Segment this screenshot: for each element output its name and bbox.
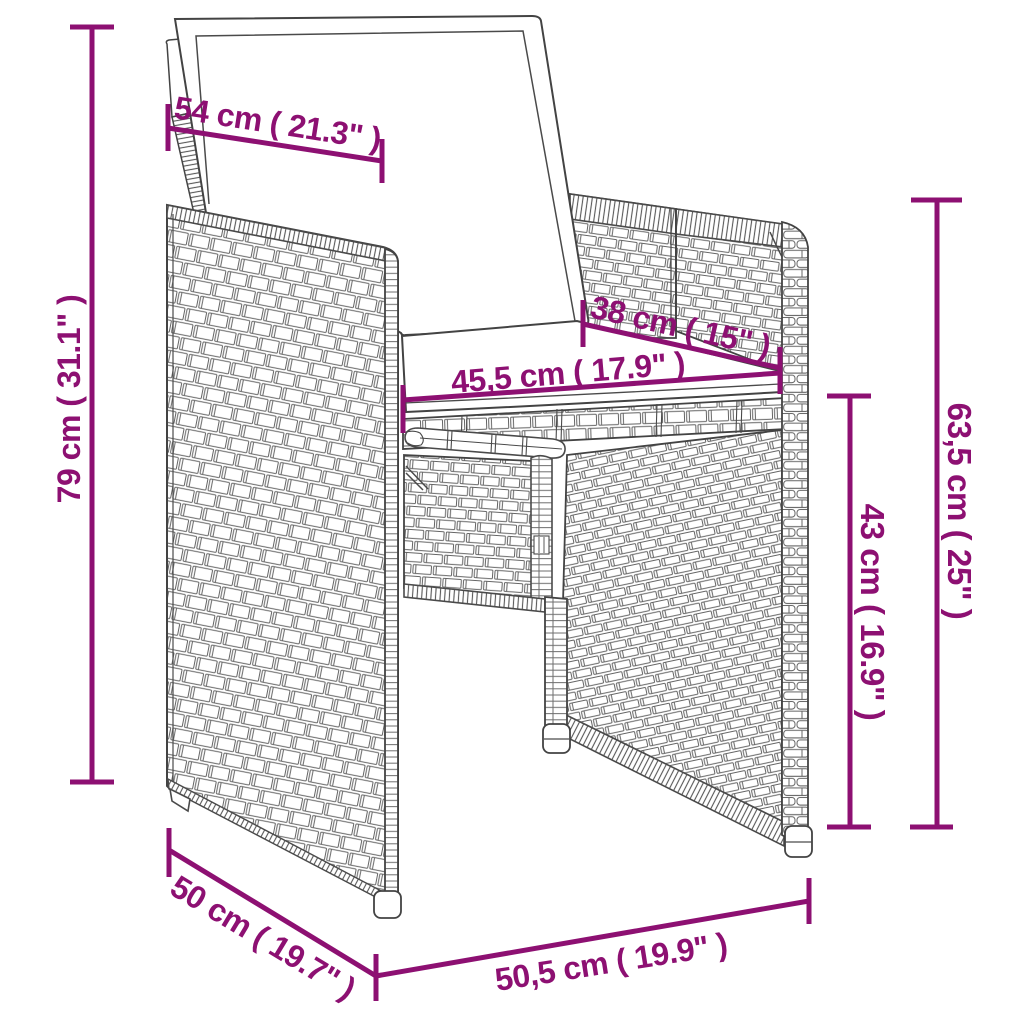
svg-text:43 cm ( 16.9" ): 43 cm ( 16.9" ) [853, 504, 890, 721]
svg-text:63,5 cm ( 25" ): 63,5 cm ( 25" ) [940, 403, 977, 620]
svg-text:50 cm ( 19.7" ): 50 cm ( 19.7" ) [164, 868, 361, 1006]
svg-text:79 cm ( 31.1" ): 79 cm ( 31.1" ) [51, 295, 87, 504]
